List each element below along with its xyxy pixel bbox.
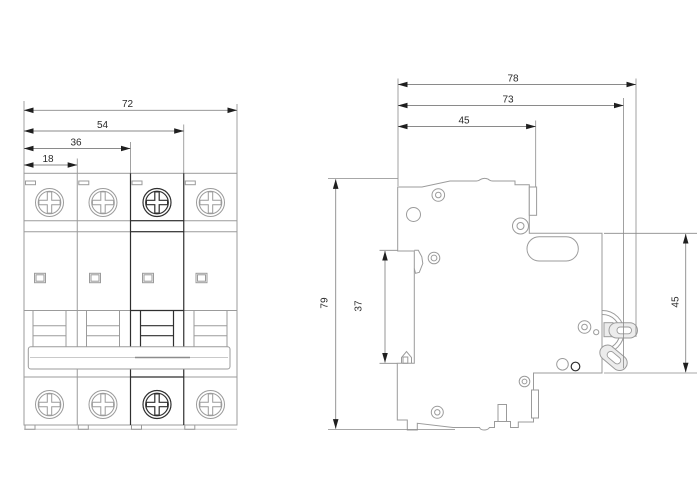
lower-front-tab (532, 390, 539, 418)
dim-label-upper-depth: 45 (458, 115, 470, 126)
dim-label-two-pole: 36 (70, 137, 82, 148)
dim-label-front-height: 45 (671, 296, 682, 308)
test-plunger-pin (498, 405, 507, 422)
dimension-drawing: 72 54 36 18 (0, 0, 700, 500)
dim-label-three-pole: 54 (97, 120, 109, 131)
dim-label-total-width: 72 (122, 99, 134, 110)
dim-label-total-depth: 78 (507, 73, 519, 84)
upper-front-tab (529, 187, 536, 215)
drawing-canvas: 72 54 36 18 (0, 0, 700, 500)
dim-label-height: 79 (320, 297, 331, 309)
dim-label-rail-recess: 37 (354, 300, 365, 312)
lug-tab-slot (617, 327, 632, 334)
toggle-tie-bar (28, 347, 230, 369)
toggle-handle-side (527, 237, 578, 261)
dim-label-depth-to-lug: 73 (502, 94, 514, 105)
dim-label-one-pole: 18 (42, 154, 54, 165)
